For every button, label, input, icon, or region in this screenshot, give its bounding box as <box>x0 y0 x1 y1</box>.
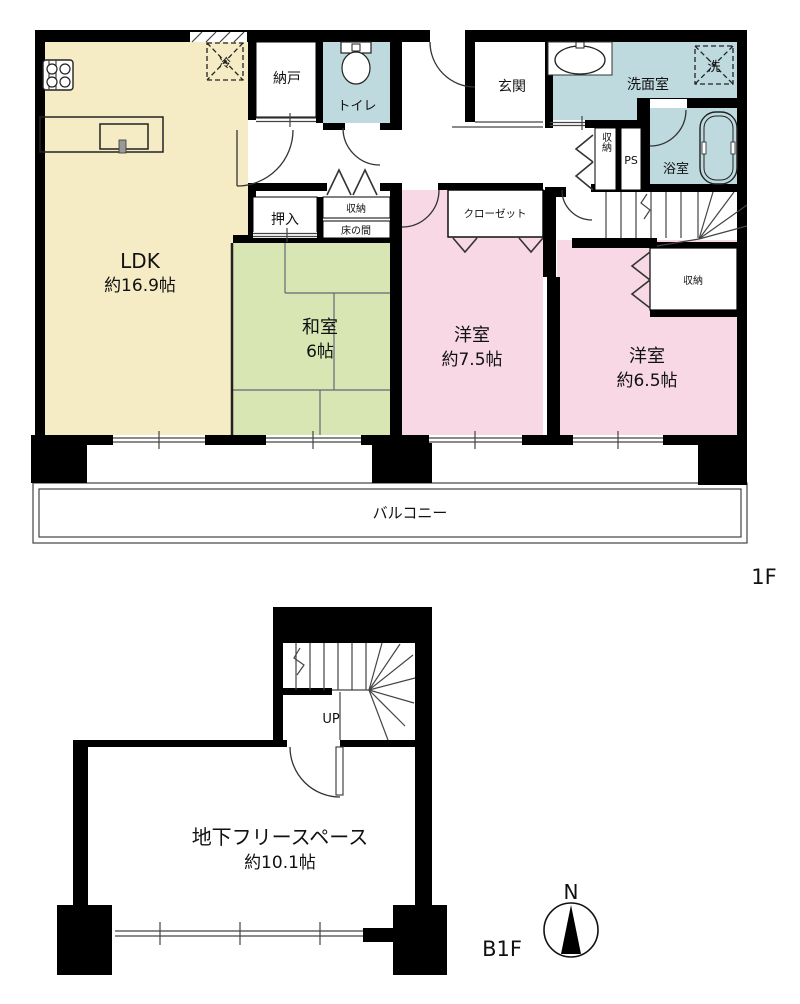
balcony <box>31 435 747 543</box>
stove-icon <box>43 60 73 90</box>
toilet-label: トイレ <box>337 99 376 114</box>
b1f-door <box>287 740 343 797</box>
compass-north-label: N <box>564 880 579 904</box>
balcony-label: バルコニー <box>373 504 448 522</box>
western2-label: 洋室 <box>629 346 665 367</box>
bathroom-floor <box>645 108 737 188</box>
pillar-middle <box>372 443 432 483</box>
washer-label: 洗 <box>707 60 720 75</box>
ldk-size-label: 約16.9帖 <box>104 276 176 296</box>
compass: N <box>544 880 598 957</box>
washitsu-label: 和室 <box>302 317 338 338</box>
side-storage-label: 収納 <box>600 132 612 153</box>
walls-b1f <box>57 607 447 975</box>
hall-storage-label: 収納 <box>346 202 366 215</box>
toilet-icon <box>341 42 371 84</box>
tokonoma-label: 床の間 <box>341 224 371 237</box>
entrance-step <box>452 122 543 127</box>
b1f-room-size-label: 約10.1帖 <box>244 853 316 873</box>
floor1-label: 1F <box>751 565 776 589</box>
nando-label: 納戸 <box>273 71 301 87</box>
entrance-label: 玄関 <box>498 78 526 95</box>
b1f-room-label: 地下フリースペース <box>192 825 369 849</box>
floor-plan-page: LDK 約16.9帖 和室 6帖 洋室 約7.5帖 洋室 約6.5帖 納戸 トイ… <box>0 0 800 1000</box>
closet-label: クローゼット <box>464 208 527 220</box>
b1f-floor-label: B1F <box>482 937 522 961</box>
kitchen-high-window <box>190 32 247 42</box>
b1f-door-arc <box>290 747 340 797</box>
west2-storage-label: 収納 <box>683 274 703 287</box>
bathroom-label: 浴室 <box>663 161 689 177</box>
ldk-floor <box>45 40 248 435</box>
western1-label: 洋室 <box>454 325 490 346</box>
floor-b1f: UP 地下フリースペース 約10.1帖 B1F <box>57 607 522 975</box>
western2-size-label: 約6.5帖 <box>616 371 677 391</box>
toilet-door-arc <box>343 128 380 165</box>
western1-size-label: 約7.5帖 <box>441 350 502 370</box>
oshiire-label: 押入 <box>271 212 299 228</box>
stairs-1f <box>606 192 747 246</box>
floor-plan-drawing: LDK 約16.9帖 和室 6帖 洋室 約7.5帖 洋室 約6.5帖 納戸 トイ… <box>0 0 800 1000</box>
ldk-label: LDK <box>120 249 161 273</box>
labels-b1f: UP 地下フリースペース 約10.1帖 B1F <box>192 712 522 961</box>
up-label: UP <box>322 712 340 727</box>
compass-needle <box>561 905 581 954</box>
ps-label: PS <box>624 154 638 167</box>
pillar-right <box>698 440 747 485</box>
floor-1f: LDK 約16.9帖 和室 6帖 洋室 約7.5帖 洋室 約6.5帖 納戸 トイ… <box>31 30 777 589</box>
stair-door-arc <box>562 190 592 220</box>
stair-break-mark-1f <box>641 194 650 219</box>
washroom-label: 洗面室 <box>627 76 669 93</box>
window-b1f <box>115 922 363 945</box>
sink-icon <box>548 42 612 75</box>
washitsu-floor <box>233 243 390 435</box>
pillar-left <box>31 435 87 483</box>
washitsu-size-label: 6帖 <box>306 342 334 362</box>
fridge-label: 冷 <box>219 56 231 70</box>
